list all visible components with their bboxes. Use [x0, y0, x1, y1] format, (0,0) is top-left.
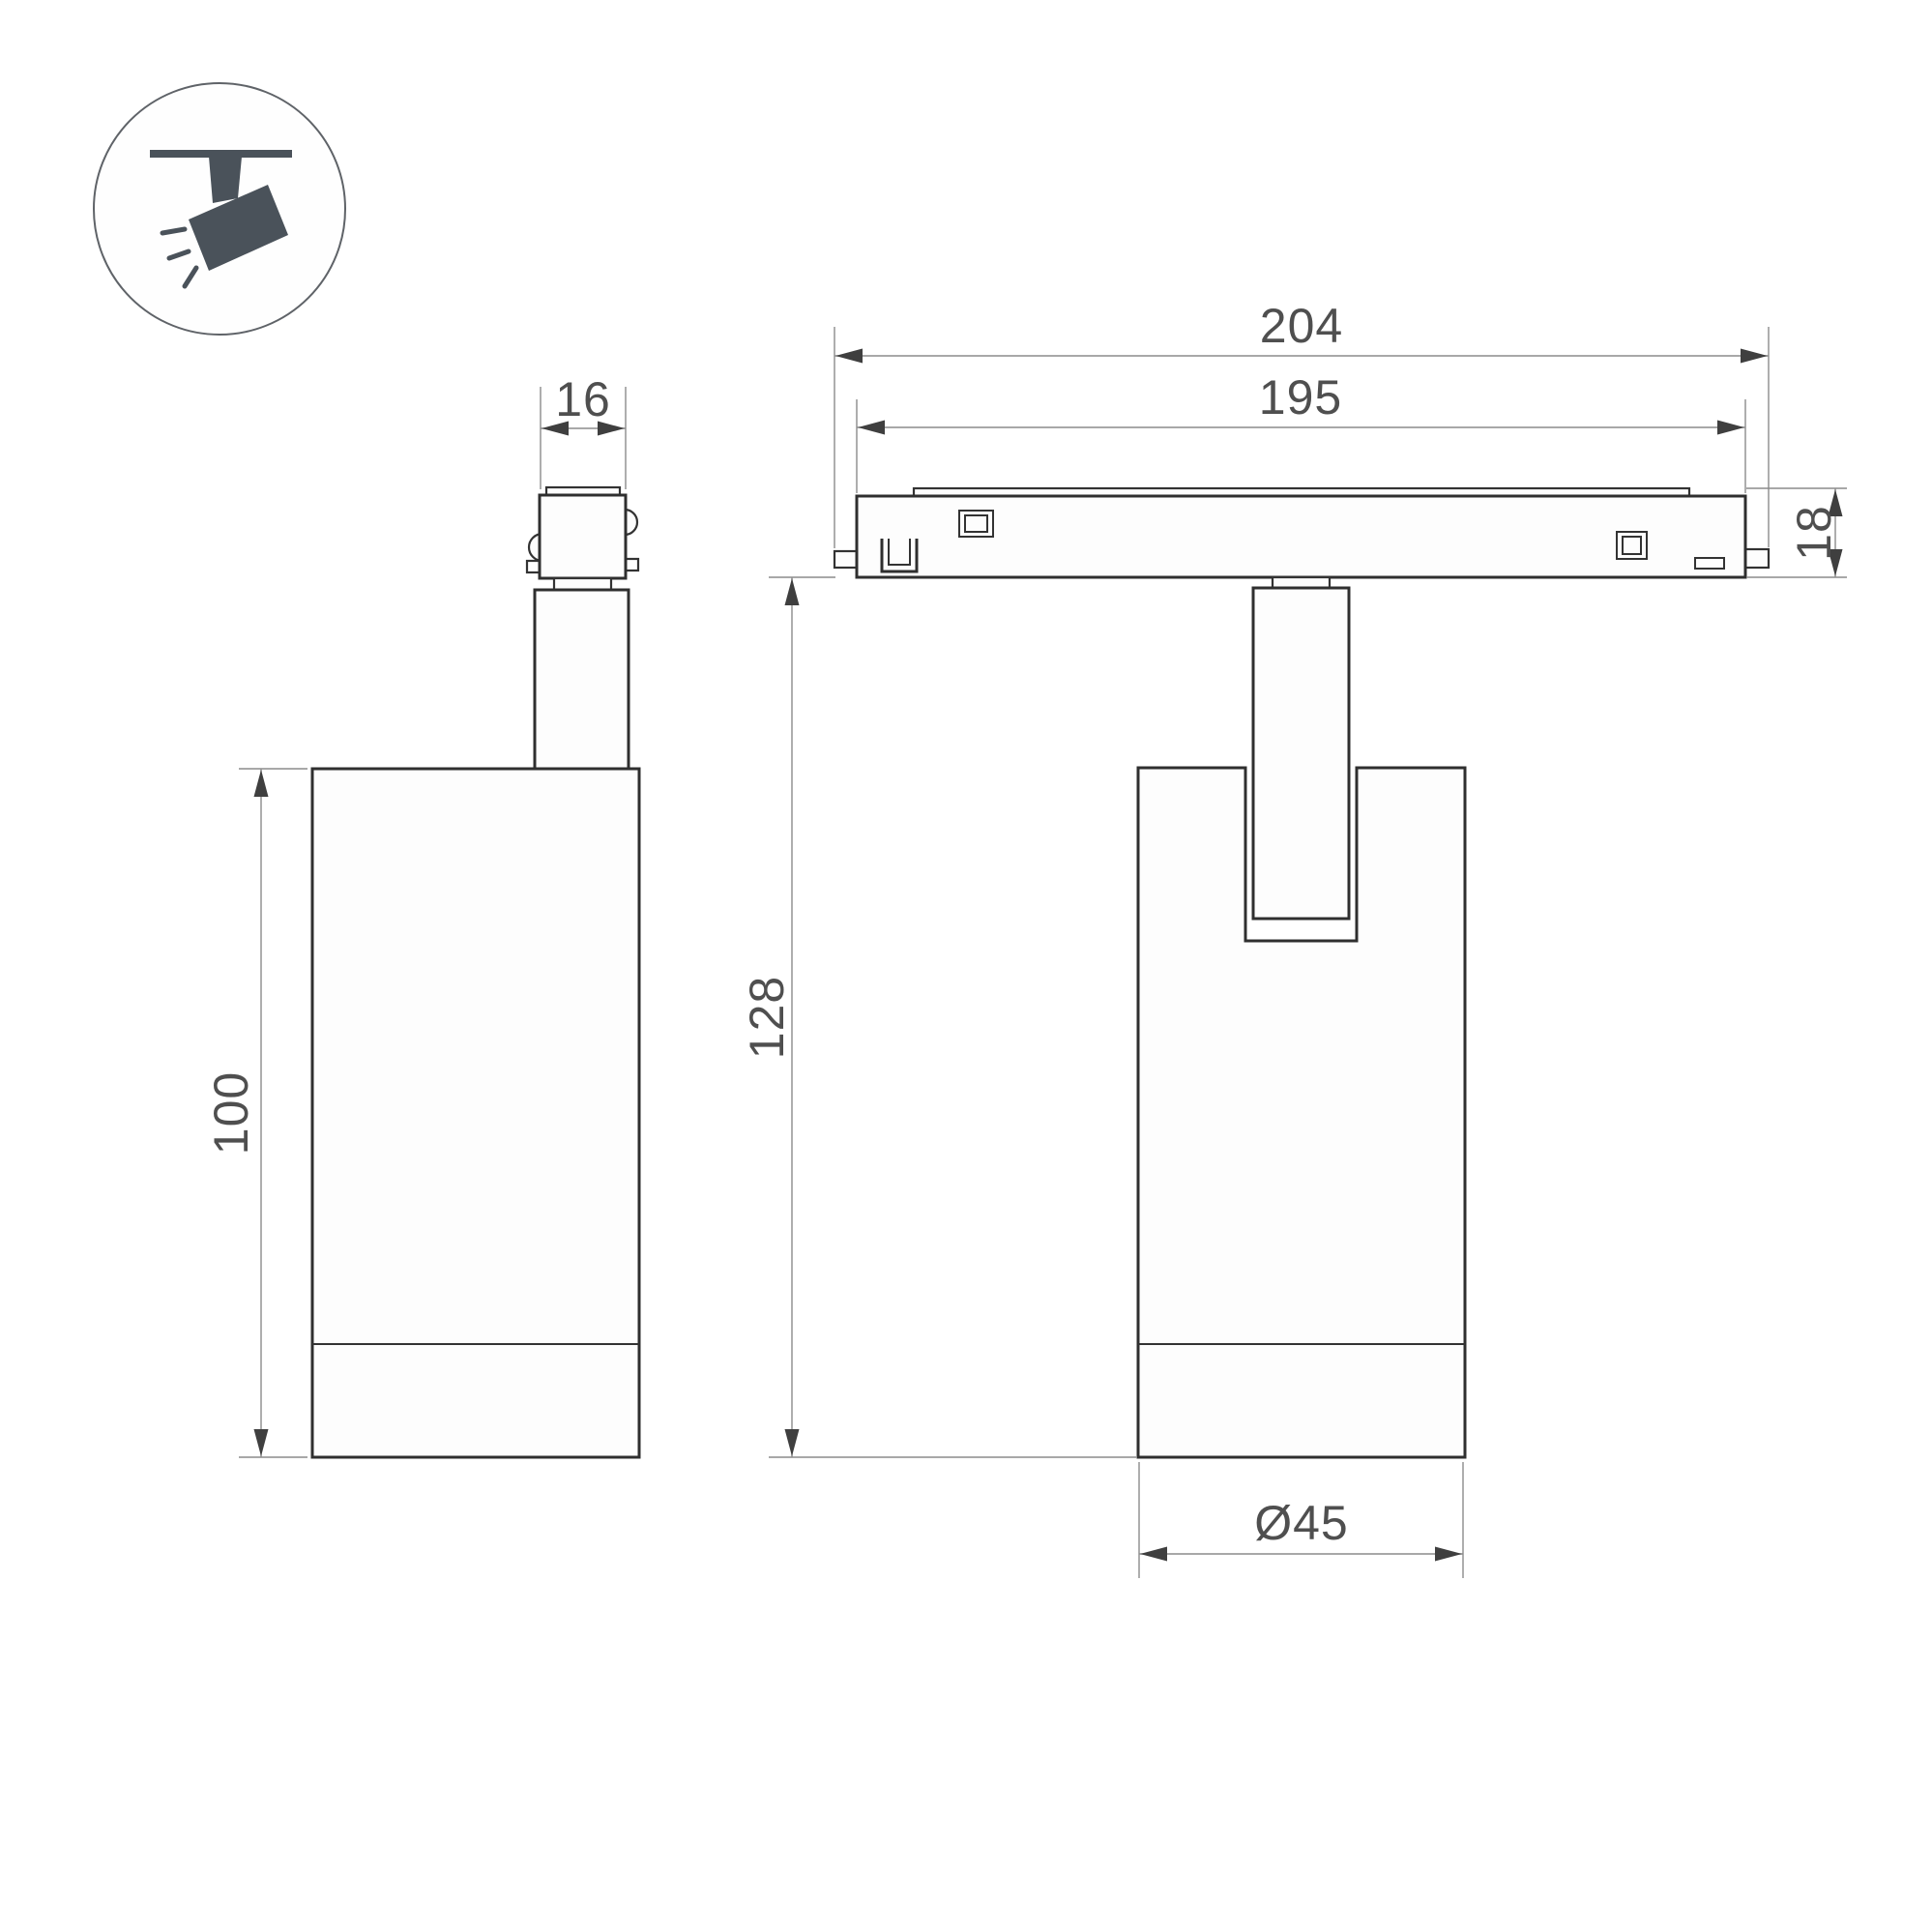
track-end-tab-left [834, 551, 857, 568]
track-end-tab-right [1745, 549, 1769, 568]
dim-label-204: 204 [1260, 299, 1343, 353]
mount-stem-icon [209, 157, 242, 203]
side-view [312, 487, 639, 1457]
dim-body-height: 100 [204, 769, 307, 1457]
pivot-stem-front [1253, 588, 1349, 919]
track-light-pictogram [94, 83, 345, 335]
dimension-drawing: 16 100 204 [0, 0, 1932, 1932]
adapter-collar [1273, 577, 1330, 588]
dim-total-height: 128 [740, 577, 1136, 1457]
technical-drawing-page: 16 100 204 [0, 0, 1932, 1932]
pivot-stem [535, 590, 629, 769]
dim-label-16: 16 [555, 372, 611, 426]
front-view [834, 488, 1769, 1457]
dim-adapter-width: 16 [541, 372, 626, 489]
connector-box [540, 495, 626, 578]
ceiling-line-icon [150, 150, 292, 158]
lamp-body-side [312, 769, 639, 1457]
dim-label-195: 195 [1259, 370, 1342, 424]
dim-label-100: 100 [204, 1071, 258, 1155]
dim-body-diameter: Ø45 [1139, 1462, 1463, 1578]
pivot-neck [554, 578, 611, 590]
dim-label-d45: Ø45 [1254, 1496, 1349, 1550]
dim-label-18: 18 [1787, 505, 1841, 561]
dim-label-128: 128 [740, 976, 794, 1059]
dim-track-body: 195 [857, 370, 1745, 493]
